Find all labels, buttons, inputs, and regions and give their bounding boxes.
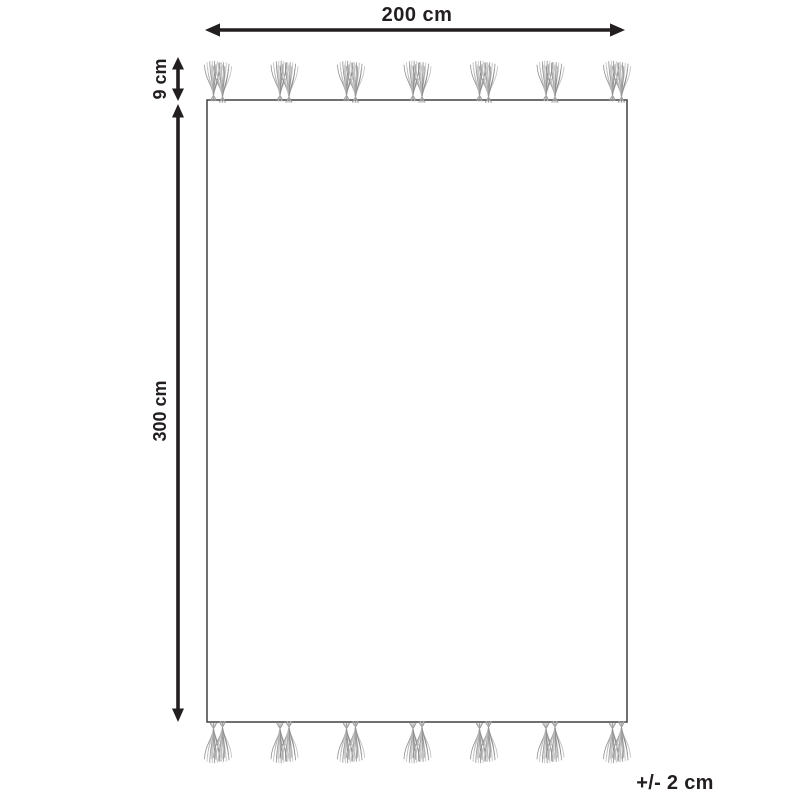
tassel-group (604, 61, 631, 103)
rug-diagram-graphic (0, 0, 800, 800)
width-dimension-label: 200 cm (337, 4, 497, 27)
tolerance-label: +/- 2 cm (620, 772, 730, 795)
height-dimension-arrow (172, 104, 184, 722)
tassel-group (205, 61, 232, 103)
tassel-group (537, 61, 564, 103)
tassel-group (271, 61, 298, 103)
fringe-dimension-arrow (172, 57, 184, 101)
tassel-group (537, 722, 564, 764)
tassel-row-top (205, 61, 631, 103)
tassel-group (471, 722, 498, 764)
height-dimension-label: 300 cm (148, 361, 172, 461)
rug-outline (207, 100, 627, 722)
tassel-group (404, 722, 431, 764)
tassel-group (271, 722, 298, 764)
tassel-group (604, 722, 631, 764)
fringe-dimension-label: 9 cm (148, 39, 172, 119)
tassel-group (205, 722, 232, 764)
tassel-group (471, 61, 498, 103)
tassel-group (338, 722, 365, 764)
tassel-row-bottom (205, 722, 631, 764)
tassel-group (338, 61, 365, 103)
diagram-canvas: 200 cm 9 cm 300 cm +/- 2 cm (0, 0, 800, 800)
tassel-group (404, 61, 431, 103)
